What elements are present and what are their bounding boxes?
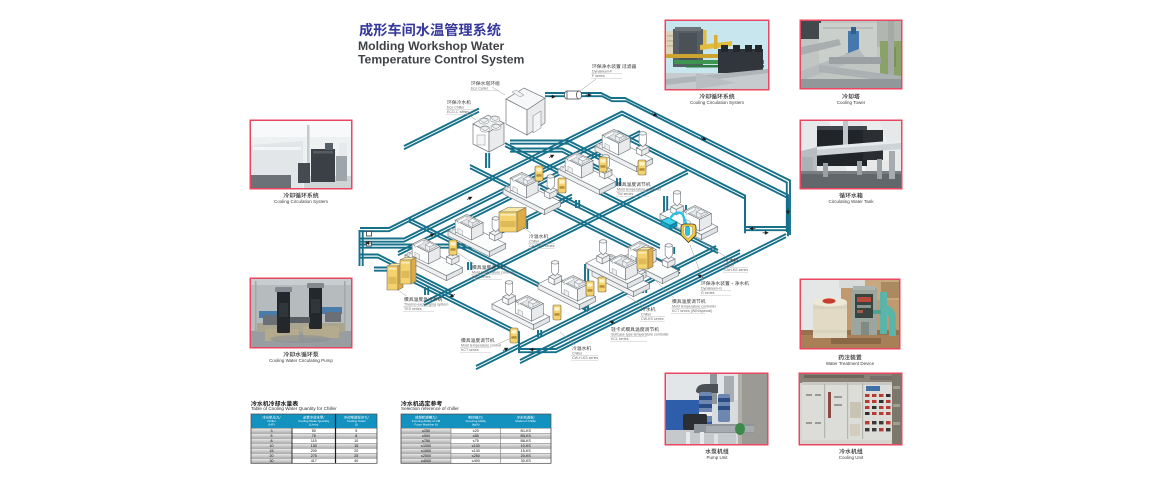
svg-text:Cooling Water Circulating Pum: Cooling Water Circulating Pump [269,358,333,363]
svg-text:CW-H-KS series: CW-H-KS series [572,356,598,360]
svg-text:50: 50 [312,429,316,433]
svg-text:CAH-KS series: CAH-KS series [724,268,748,272]
svg-text:Mold temperature control: Mold temperature control [461,344,501,348]
svg-text:KCT series: KCT series [461,348,479,352]
svg-text:15: 15 [354,444,358,448]
svg-text:10: 10 [354,439,358,443]
svg-text:KCT series (WIN/special): KCT series (WIN/special) [672,309,712,313]
svg-text:Dynakleen-G: Dynakleen-G [701,287,722,291]
svg-text:115: 115 [311,439,317,443]
svg-text:Eco Chiller: Eco Chiller [447,106,465,110]
svg-text:≤2500: ≤2500 [421,454,431,458]
svg-text:Force Machine (t): Force Machine (t) [414,423,438,427]
svg-text:Cooling Tower: Cooling Tower [837,100,866,105]
svg-text:KCL series: KCL series [611,337,629,341]
svg-text:Thermo-exchanging system: Thermo-exchanging system [404,303,448,307]
svg-text:Chiller: Chiller [724,264,735,268]
svg-text:KCO series: KCO series [472,275,491,279]
svg-text:Model of Chiller: Model of Chiller [515,419,536,423]
svg-text:Mold temperature controller: Mold temperature controller [672,305,717,309]
svg-text:Chiller: Chiller [529,240,540,244]
svg-text:5: 5 [355,429,357,433]
svg-text:(kg/h): (kg/h) [472,423,480,427]
svg-text:10-KS: 10-KS [521,444,532,448]
svg-text:≤100: ≤100 [472,444,480,448]
svg-text:Eco Carler: Eco Carler [471,87,489,91]
svg-text:Dynakleen-F: Dynakleen-F [592,70,613,74]
svg-text:8: 8 [271,439,273,443]
svg-text:30: 30 [270,459,274,463]
svg-text:Temperature Control System: Temperature Control System [358,52,525,66]
svg-text:ECO-C series: ECO-C series [447,110,469,114]
svg-text:≤50: ≤50 [473,434,479,438]
svg-text:F series: F series [592,74,605,78]
svg-text:Suitcase type temperature cont: Suitcase type temperature controller [611,333,670,337]
svg-text:Selection reference of chiller: Selection reference of chiller [401,406,459,411]
svg-text:CA-H-KS series: CA-H-KS series [529,244,555,248]
svg-text:≤75: ≤75 [473,439,479,443]
svg-text:20: 20 [270,454,274,458]
svg-text:≤1000: ≤1000 [421,444,431,448]
svg-text:B1-KS: B1-KS [521,429,532,433]
svg-text:76: 76 [312,434,316,438]
svg-text:Chiller: Chiller [572,352,583,356]
svg-text:20-KS: 20-KS [521,454,532,458]
svg-text:≤250: ≤250 [422,429,430,433]
svg-text:≤500: ≤500 [422,434,430,438]
svg-text:20: 20 [354,449,358,453]
svg-text:30-KS: 30-KS [521,459,532,463]
svg-text:≤20: ≤20 [473,429,479,433]
svg-text:Mold temperature controller: Mold temperature controller [617,188,662,192]
svg-text:Cooling Circulation System: Cooling Circulation System [690,100,744,105]
svg-text:(L/min): (L/min) [309,423,318,427]
svg-text:5: 5 [271,434,273,438]
svg-text:(t): (t) [355,423,358,427]
svg-text:Chiller: Chiller [641,313,652,317]
svg-text:15: 15 [270,449,274,453]
svg-text:≤400: ≤400 [472,459,480,463]
svg-text:Molding Workshop Water: Molding Workshop Water [358,39,505,53]
svg-text:3: 3 [271,429,273,433]
svg-text:25: 25 [354,454,358,458]
svg-text:15-KS: 15-KS [521,449,532,453]
svg-text:(HP): (HP) [268,423,274,427]
svg-text:≤1500: ≤1500 [421,449,431,453]
svg-text:≤750: ≤750 [422,439,430,443]
svg-text:130: 130 [311,444,317,448]
svg-text:B5-KS: B5-KS [521,434,532,438]
svg-text:10: 10 [270,444,274,448]
svg-text:Cooling Circulation System: Cooling Circulation System [274,199,328,204]
svg-text:8: 8 [355,434,357,438]
svg-text:Cooling Unit: Cooling Unit [839,455,864,460]
svg-text:G series: G series [701,291,715,295]
svg-text:B8-KS: B8-KS [521,439,532,443]
svg-text:275: 275 [311,454,317,458]
svg-text:200: 200 [311,449,317,453]
svg-text:TES series: TES series [404,307,422,311]
svg-text:Mold temperature controller: Mold temperature controller [472,271,517,275]
svg-text:40: 40 [354,459,358,463]
svg-text:Table of Cooling Water Quantit: Table of Cooling Water Quantity for Chil… [251,406,337,411]
svg-text:Water Treatment Device: Water Treatment Device [826,361,875,366]
svg-text:CW-KS series: CW-KS series [641,317,664,321]
svg-text:≤4000: ≤4000 [421,459,431,463]
svg-text:TW series: TW series [617,192,633,196]
svg-text:≤250: ≤250 [472,454,480,458]
svg-text:Pump Unit: Pump Unit [706,455,728,460]
svg-text:Circulating Water Tank: Circulating Water Tank [828,199,874,204]
svg-text:417: 417 [311,459,317,463]
svg-text:≤130: ≤130 [472,449,480,453]
